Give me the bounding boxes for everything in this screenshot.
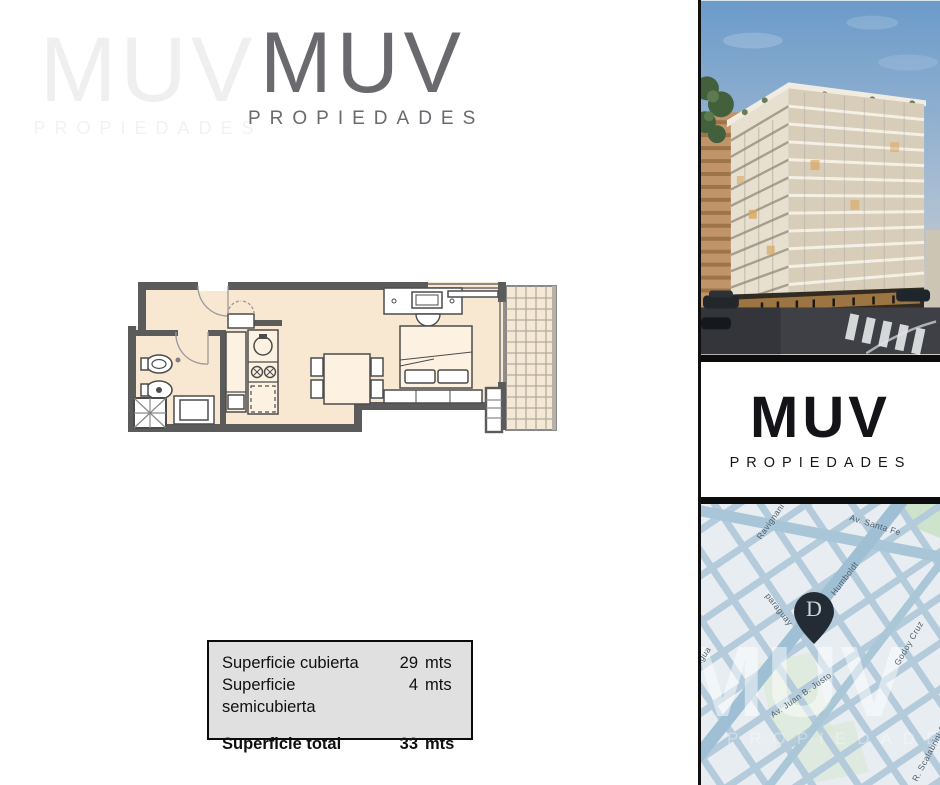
brand-logo: MUV PROPIEDADES [248, 18, 478, 130]
washer [174, 396, 214, 424]
cabinet [226, 332, 246, 412]
divider-bar [701, 497, 940, 504]
watermark-logo-text: MUV [28, 24, 268, 116]
brand-logo-tagline: PROPIEDADES [248, 108, 478, 130]
surface-label: Superficie cubierta [222, 652, 384, 674]
bed [400, 326, 472, 388]
watermark-logo-tagline: PROPIEDADES [28, 118, 268, 139]
svg-text:MUV: MUV [701, 626, 909, 738]
sidebar-logo: MUV PROPIEDADES [701, 362, 940, 497]
main-building [727, 82, 926, 317]
brand-logo-text: MUV [248, 18, 478, 108]
surface-value: 29 [384, 652, 418, 674]
flyer-main-area: MUV PROPIEDADES MUV PROPIEDADES [0, 0, 700, 785]
surface-total-unit: mts [425, 733, 459, 755]
surface-row-semicovered: Superficie semicubierta 4 mts [222, 674, 459, 718]
building-photo [701, 0, 940, 355]
surface-total-value: 33 [384, 733, 418, 755]
surface-value: 4 [384, 674, 418, 696]
map-drawing: MUV PROPIEDADES Av. Santa Fe Ravignani H… [701, 504, 940, 785]
surface-row-covered: Superficie cubierta 29 mts [222, 652, 459, 674]
floor-plan [128, 274, 568, 446]
floor-plan-drawing [128, 274, 568, 446]
svg-text:PROPIEDADES: PROPIEDADES [727, 729, 940, 748]
location-map: MUV PROPIEDADES Av. Santa Fe Ravignani H… [701, 504, 940, 785]
watermark-logo: MUV PROPIEDADES [28, 24, 268, 139]
utility-box [486, 388, 502, 432]
surface-row-total: Superficie total 33 mts [222, 733, 459, 755]
surface-unit: mts [425, 652, 459, 674]
surface-label: Superficie semicubierta [222, 674, 384, 718]
surface-total-label: Superficie total [222, 733, 384, 755]
pin-letter: D [806, 596, 822, 621]
sidebar-logo-tagline: PROPIEDADES [730, 455, 912, 471]
shaft [134, 398, 166, 428]
sidebar-logo-text: MUV [750, 389, 891, 447]
divider-bar [701, 355, 940, 362]
surface-table: Superficie cubierta 29 mts Superficie se… [207, 640, 473, 740]
sidebar: MUV PROPIEDADES MUV PROPIEDADES [698, 0, 940, 785]
building-render [701, 0, 940, 355]
balcony [506, 286, 556, 430]
kitchen [248, 330, 278, 414]
bench [384, 390, 482, 403]
surface-unit: mts [425, 674, 459, 696]
